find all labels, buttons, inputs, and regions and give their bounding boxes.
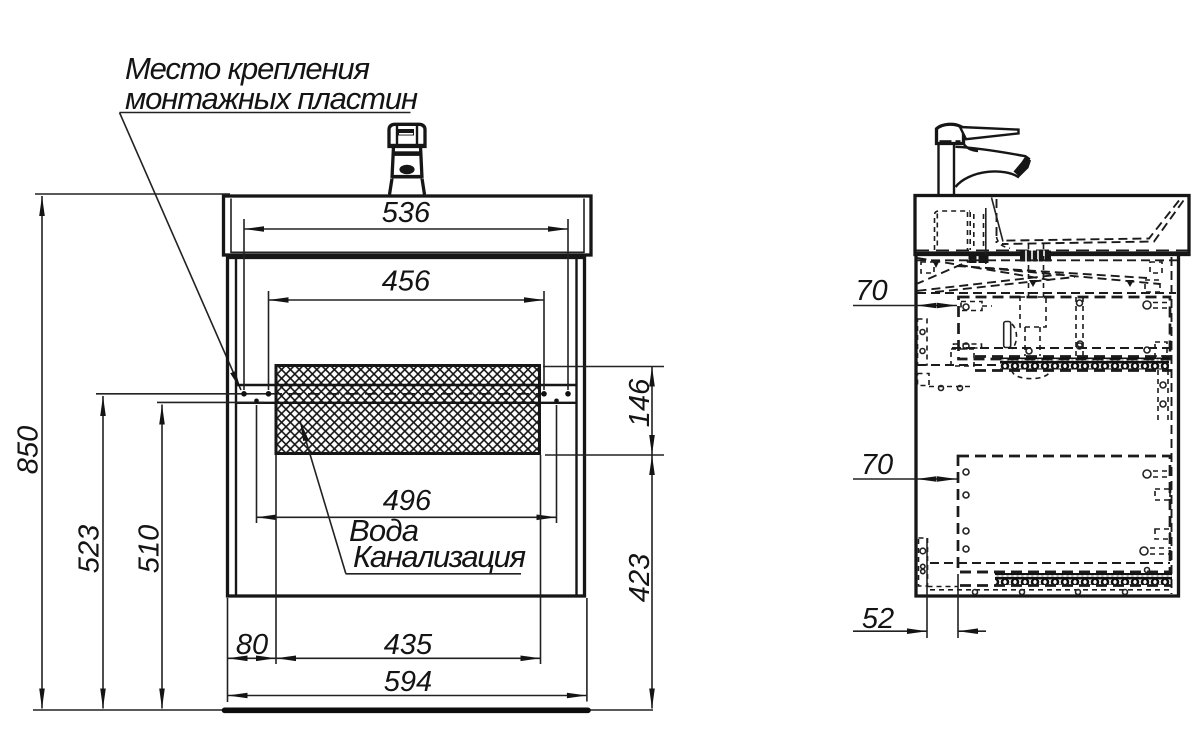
svg-text:456: 456 (382, 266, 431, 298)
svg-text:80: 80 (236, 629, 268, 661)
svg-text:523: 523 (74, 525, 106, 573)
svg-text:70: 70 (861, 449, 893, 481)
svg-text:423: 423 (624, 554, 656, 602)
svg-text:52: 52 (862, 603, 894, 635)
svg-text:Канализация: Канализация (353, 539, 526, 574)
svg-text:850: 850 (13, 426, 45, 474)
svg-text:594: 594 (384, 666, 432, 698)
svg-text:70: 70 (855, 275, 887, 307)
svg-text:510: 510 (134, 525, 166, 573)
svg-text:монтажных пластин: монтажных пластин (125, 81, 418, 116)
svg-text:146: 146 (624, 378, 656, 427)
svg-text:435: 435 (384, 629, 433, 661)
svg-text:536: 536 (382, 197, 431, 229)
